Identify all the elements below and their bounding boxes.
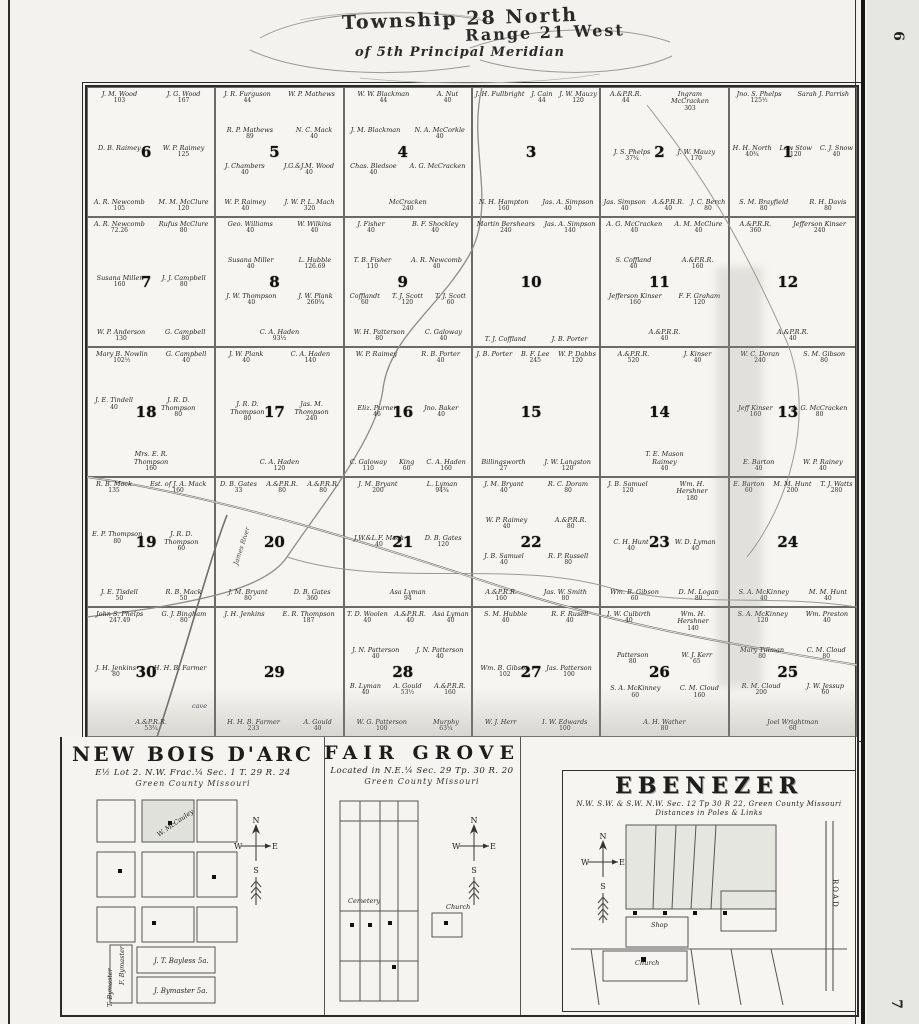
parcel-label: A. R. Newcomb72.26 [94,221,145,235]
section-number: 11 [649,273,670,291]
parcel-label: I. W. Edwards100 [542,719,587,733]
section-1: Jno. S. Phelps125½Sarah J. ParrishH. H. … [729,87,857,217]
parcel-label: Jas. A. Simpson140 [544,221,595,235]
parcel-label: J. N. Patterson40 [416,647,463,661]
parcel-label: D. M. Logan80 [678,589,718,603]
parcel-label: A.&P.R.R.360 [740,221,772,235]
cemetery-label: Cemetery [348,897,380,905]
parcel-label: Jeff Kinser160 [738,405,773,419]
parcel-label: G. Campbell80 [165,329,205,343]
parcel-label: J.G.&J.M. Wood40 [284,163,334,177]
parcel-label: S. A. McKinney40 [739,589,789,603]
inset-location-ebenezer: N.W. S.W. & S.W. N.W. Sec. 12 Tp 30 R 22… [563,800,855,808]
compass-w: W [452,842,461,851]
parcel-label: J. G. Wood167 [167,91,201,105]
section-number: 17 [264,403,285,421]
section-number: 16 [392,403,413,421]
parcel-label: C. M. Cloud80 [807,647,846,661]
section-15: J. B. PorterB. F. Lee245W. P. Dabbs120Bi… [472,347,600,477]
parcel-label: B. F. Shockley40 [412,221,458,235]
parcel-label: S. M. Gibson80 [803,351,845,365]
section-number: 10 [521,273,542,291]
parcel-label: J. C. Berch80 [691,199,726,213]
inset-title-new-bois-darc: NEW BOIS D'ARC [62,742,324,766]
t-bymaster-parcel-label: T. Bymaster [106,968,114,1007]
section-18: Mary B. Nowlin102½G. Campbell40J. E. Tin… [87,347,215,477]
parcel-label: L. Hubble126.69 [299,257,332,271]
parcel-label: S. A. McKinney120 [738,611,788,625]
parcel-label: R. C. Doram80 [548,481,588,495]
parcel-label: Cofflandt60 [350,293,380,307]
section-number: 8 [269,273,279,291]
section-number: 20 [264,533,285,551]
inset-ebenezer: EBENEZER N.W. S.W. & S.W. N.W. Sec. 12 T… [562,770,856,1012]
parcel-label: I. W. Culbirth40 [607,611,651,633]
parcel-label: C. J. Snow40 [820,145,853,159]
compass-s: S [600,882,605,891]
parcel-label: Jas. A. Simpson40 [542,199,593,213]
parcel-label: W. P. Mathews [288,91,335,105]
parcel-label: A.&P.R.R.40 [394,611,426,625]
parcel-label: A.&P.R.R.40 [777,329,809,343]
parcel-label: W. J. Kerr65 [681,652,712,666]
section-number: 26 [649,663,670,681]
j-bymaster-parcel-label: J. Bymaster 5a. [154,987,208,995]
parcel-label: J. W. Plank40 [229,351,263,365]
section-27: S. M. Hubble40R. F. Rusell40Wm. B. Gibso… [472,607,600,737]
parcel-label: W. H. Patterson80 [354,329,405,343]
section-number: 30 [136,663,157,681]
parcel-label: A. Gould53½ [393,683,421,697]
parcel-label: J. H. Jenkins [224,611,264,625]
parcel-label: Jas. Simpson40 [604,199,646,213]
parcel-label: A. G. McCracken [410,163,466,177]
section-number: 12 [777,273,798,291]
parcel-label: N. A. McCorkle40 [415,127,465,141]
parcel-label: G. Campbell40 [166,351,206,365]
compass-s: S [471,866,476,875]
section-29: J. H. JenkinsE. R. Thompson187H. H. B. F… [215,607,343,737]
parcel-label: J. M. Bryant80 [228,589,267,603]
parcel-label: R. P. Mathews89 [227,127,273,141]
parcel-label: W. D. Lyman40 [675,539,716,553]
parcel-label: S. Coffland40 [616,257,652,271]
parcel-label: Rufus McClure80 [159,221,209,235]
parcel-label: M. M. Hunt40 [809,589,847,603]
inset-title-fair-grove: FAIR GROVE [324,742,520,764]
parcel-label: J. E. Tisdell50 [101,589,138,603]
section-number: 3 [526,143,536,161]
parcel-label: W. W. Blackman44 [357,91,409,105]
section-10: Martin Bershears240Jas. A. Simpson140T. … [472,217,600,347]
township-grid: J. M. Wood103J. G. Wood167D. B. RaimeyW.… [87,87,857,737]
parcel-label: R. B. Porter40 [421,351,460,365]
section-2: A.&P.R.R.44Ingram McCracken303J. S. Phel… [600,87,728,217]
parcel-label: J. B. Porter [552,336,588,343]
parcel-label: Jas. Patterson100 [546,665,592,679]
parcel-label: J. B. Samuel120 [608,481,648,503]
parcel-label: Asa Lyman40 [433,611,469,625]
parcel-label: F. F. Graham120 [679,293,721,307]
section-28: T. D. Woolen40A.&P.R.R.40Asa Lyman40J. N… [344,607,472,737]
parcel-label: C. A. Haden120 [260,459,299,473]
inset-divider-2 [520,737,521,1015]
parcel-label: R. F. Rusell40 [551,611,588,625]
atlas-page: Township 28 North Range 21 West of 5th P… [0,0,919,1024]
parcel-label: C. Galoway110 [350,459,387,473]
parcel-label: T. J. Watts280 [820,481,852,495]
compass-e: E [272,842,278,851]
section-number: 19 [136,533,157,551]
parcel-label: A.&P.R.R.160 [434,683,466,697]
parcel-label: G. J. Bingham80 [161,611,206,625]
parcel-label: J. M. Wood103 [102,91,137,105]
parcel-label: S. M. Hubble40 [484,611,527,625]
parcel-label: Martin Bershears240 [477,221,535,235]
parcel-label: J. W. P. L. Mach320 [285,199,335,213]
section-23: J. B. Samuel120Wm. H. Hershner180C. H. H… [600,477,728,607]
parcel-label: W. P. Anderson130 [97,329,145,343]
parcel-label: C. Galoway40 [425,329,462,343]
township-map: J. M. Wood103J. G. Wood167D. B. RaimeyW.… [85,85,859,739]
section-19: R. B. Mack135Est. of J. A. Mack160E. P. … [87,477,215,607]
parcel-label: T. D. Woolen40 [347,611,388,625]
parcel-label: Patterson80 [617,652,649,666]
compass-n: N [253,816,260,825]
parcel-label: Jno. S. Phelps125½ [737,91,782,105]
inset-county-new-bois-darc: Green County Missouri [62,779,324,788]
parcel-label: J. W. Mauzy170 [677,149,715,163]
section-6: J. M. Wood103J. G. Wood167D. B. RaimeyW.… [87,87,215,217]
section-number: 24 [777,533,798,551]
parcel-label: A.&P.R.R.80 [266,481,298,495]
compass-e: E [490,842,496,851]
parcel-label: J. M. Bryant40 [484,481,523,495]
parcel-label: A. R. Newcomb105 [94,199,145,213]
compass-rose: N W E S [452,815,496,911]
section-number: 4 [398,143,408,161]
section-number: 7 [141,273,151,291]
inset-county-fair-grove: Green County Missouri [324,777,520,786]
parcel-label: A. G. McCracken40 [606,221,662,235]
section-11: A. G. McCracken40A. M. McClure40S. Coffl… [600,217,728,347]
parcel-label: J. W. Mauzy120 [559,91,597,105]
parcel-label: J. Chambers40 [225,163,265,177]
section-number: 2 [654,143,664,161]
parcel-label: C. H. Hunt40 [613,539,648,553]
parcel-label: Wm. B. Gibson60 [610,589,659,603]
parcel-label: N. H. Hampton160 [479,199,529,213]
compass-n: N [600,832,607,841]
parcel-label: M. M. Hunt200 [773,481,811,495]
church-label-eb: Church [635,959,659,967]
parcel-label: R. B. Mack135 [96,481,132,495]
parcel-label: E. R. Thompson187 [283,611,335,625]
parcel-label: H. H. B. Farmer233 [227,719,280,733]
parcel-label: J. H. Fullbright [475,91,524,105]
parcel-label: E. Barton40 [743,459,774,473]
section-17: J. W. Plank40C. A. Haden140J. R. D. Thom… [215,347,343,477]
bayless-parcel-label: J. T. Bayless 5a. [154,957,209,965]
parcel-label: Susana Miller40 [228,257,274,271]
shop-label: Shop [651,921,668,929]
parcel-label: J. J. Campbell80 [162,275,206,289]
parcel-label: R. H. Davis80 [809,199,846,213]
parcel-label: Wm. Preston40 [806,611,848,625]
section-number: 18 [136,403,157,421]
map-title-block: Township 28 North Range 21 West of 5th P… [240,8,680,86]
parcel-label: J. B. Samuel40 [484,553,524,567]
parcel-label: J. Cain44 [531,91,552,105]
section-3: J. H. FullbrightJ. Cain44J. W. Mauzy120N… [472,87,600,217]
inset-fair-grove: FAIR GROVE Located in N.E.¼ Sec. 29 Tp. … [324,737,520,1015]
parcel-label: W. J. Herr [485,719,517,733]
inset-new-bois-darc: NEW BOIS D'ARC E½ Lot 2. N.W. Frac.¼ Sec… [62,737,324,1015]
road-label: ROAD [831,879,839,909]
section-number: 27 [521,663,542,681]
parcel-label: A. M. McClure40 [674,221,722,235]
parcel-label: A.&P.R.R.80 [307,481,339,495]
section-number: 14 [649,403,670,421]
page-edge-band: 6 7 [867,0,919,1024]
section-22: J. M. Bryant40R. C. Doram80W. P. Raimey4… [472,477,600,607]
parcel-label: J. W. Thompson40 [226,293,276,307]
section-number: 29 [264,663,285,681]
parcel-label: B. F. Lee245 [521,351,550,365]
parcel-label: D. B. Raimey [98,145,141,159]
parcel-label: B. Lyman40 [350,683,381,697]
section-number: 28 [392,663,413,681]
parcel-label: A.&P.R.R.40 [652,199,684,213]
parcel-label: A.&P.R.R.53¾ [135,719,167,733]
parcel-label: J. S. Phelps37¾ [614,149,651,163]
parcel-label: H. H. North40¾ [733,145,772,159]
inset-note-ebenezer: Distances in Poles & Links [563,809,855,817]
parcel-label: Eliz. Purner46 [357,405,396,419]
section-number: 1 [783,143,793,161]
f-bymaster-parcel-label: F. Bymaster [118,946,126,985]
parcel-label: W. G. Patterson100 [357,719,407,733]
parcel-label: J. Fisher40 [357,221,384,235]
parcel-label: S. M. Brayfield80 [739,199,788,213]
page-number-bottom: 7 [888,999,904,1009]
parcel-label: McCracken240 [389,199,427,213]
parcel-label: N. C. Mack40 [296,127,332,141]
page-edge-line-thin [855,0,856,1024]
parcel-label: R. P. Russell80 [548,553,588,567]
parcel-label: R. M. Cloud200 [742,683,781,697]
parcel-label: R. B. Mack50 [165,589,201,603]
section-number: 23 [649,533,670,551]
section-26: I. W. Culbirth40Wm. H. Hershner140Patter… [600,607,728,737]
section-number: 22 [521,533,542,551]
parcel-label: D. B. Gates360 [294,589,331,603]
page-gutter-line [8,0,10,1024]
parcel-label: Jas. W. Smith80 [544,589,587,603]
section-7: A. R. Newcomb72.26Rufus McClure80Susana … [87,217,215,347]
parcel-label: A.&P.R.R.520 [618,351,650,365]
parcel-label: A. H. Wather80 [643,719,685,733]
parcel-label: W. P. Raimey125 [163,145,205,159]
parcel-label: Jno. Baker40 [424,405,458,419]
parcel-label: W. P. Raimey [356,351,398,365]
section-5: J. R. Furguson44W. P. MathewsR. P. Mathe… [215,87,343,217]
parcel-label: A. R. Newcomb40 [411,257,462,271]
section-30: John S. Phelps247.49G. J. Bingham80J. H.… [87,607,215,737]
parcel-label: C. A. Haden140 [291,351,330,365]
parcel-label: M. M. McClure120 [158,199,208,213]
parcel-label: J. M. Bryant200 [358,481,397,495]
parcel-label: J. Kinser40 [684,351,712,365]
parcel-label: Geo. Williams40 [228,221,273,235]
parcel-label: E. Barton60 [733,481,764,495]
parcel-label: King60 [399,459,414,473]
section-20: D. B. Gates33A.&P.R.R.80A.&P.R.R.80J. M.… [215,477,343,607]
compass-w: W [581,858,590,867]
section-14: A.&P.R.R.520J. Kinser40T. E. Mason Raime… [600,347,728,477]
parcel-label: Murphy63¼ [433,719,459,733]
section-number: 25 [777,663,798,681]
parcel-label: J. R. D. Thompson80 [149,397,207,419]
section-number: 9 [398,273,408,291]
inset-title-ebenezer: EBENEZER [563,773,855,799]
section-number: 15 [521,403,542,421]
parcel-label: J. W. Jessup60 [807,683,844,697]
parcel-label: L. Lyman94¾ [427,481,458,495]
parcel-label: W. C. Doran240 [741,351,780,365]
parcel-label: J. R. Furguson44 [224,91,271,105]
section-4: W. W. Blackman44A. Nut40J. M. BlackmanN.… [344,87,472,217]
section-number: 6 [141,143,151,161]
parcel-label: Jefferson Kinser240 [793,221,846,235]
parcel-label: T. J. Scott60 [435,293,466,307]
section-24: E. Barton60M. M. Hunt200T. J. Watts280S.… [729,477,857,607]
section-25: S. A. McKinney120Wm. Preston40Mary Tillm… [729,607,857,737]
section-number: 21 [392,533,413,551]
parcel-label: John S. Phelps247.49 [96,611,143,625]
section-13: W. C. Doran240S. M. Gibson80Jeff Kinser1… [729,347,857,477]
parcel-label: Ingram McCracken303 [661,91,719,113]
compass-s: S [253,866,258,875]
inset-location-new-bois-darc: E½ Lot 2. N.W. Frac.¼ Sec. 1 T. 29 R. 24 [62,768,324,778]
parcel-label: A. Nut40 [437,91,458,105]
parcel-label: Asa Lyman94 [390,589,426,603]
parcel-label: A.&P.R.R.40 [649,329,681,343]
parcel-label: C. A. Haden93⅓ [260,329,299,343]
parcel-label: J. R. D. Thompson60 [152,531,210,553]
compass-n: N [471,816,478,825]
parcel-label: W. P. Rainey40 [803,459,843,473]
section-9: J. Fisher40B. F. Shockley40T. B. Fisher1… [344,217,472,347]
parcel-label: Sarah J. Parrish [797,91,849,105]
parcel-label: Billingsworth27 [481,459,525,473]
section-12: A.&P.R.R.360Jefferson Kinser240A.&P.R.R.… [729,217,857,347]
parcel-label: Jas. M. Thompson240 [283,401,341,423]
parcel-label: S. A. McKinney60 [610,685,660,699]
parcel-label: Jefferson Kinser160 [609,293,662,307]
parcel-label: A.&P.R.R.160 [485,589,517,603]
parcel-label: A. G. McCracken80 [792,405,848,419]
section-21: J. M. Bryant200L. Lyman94¾J.W.&L.F. Mach… [344,477,472,607]
parcel-label: W. P. Raimey40 [486,517,528,531]
parcel-label: Susana Miller160 [97,275,143,289]
parcel-label: T. B. Fisher110 [354,257,392,271]
compass-w: W [234,842,243,851]
parcel-label: W. P. Raimey40 [225,199,267,213]
parcel-label: T. J. Scott120 [392,293,423,307]
parcel-label: D. B. Gates33 [220,481,257,495]
section-8: Geo. Williams40W. Wilkins40Susana Miller… [215,217,343,347]
parcel-label: Wm. H. Hershner140 [664,611,722,633]
section-number: 13 [777,403,798,421]
town-insets-band: NEW BOIS D'ARC E½ Lot 2. N.W. Frac.¼ Sec… [60,737,859,1017]
section-number: 5 [269,143,279,161]
parcel-label: Mrs. E. R. Thompson160 [122,451,180,473]
parcel-label: W. Wilkins40 [297,221,331,235]
parcel-label: H. H. B. Farmer [154,665,207,679]
parcel-label: C. M. Cloud160 [680,685,719,699]
compass-e: E [619,858,625,867]
page-number-top: 6 [890,31,906,41]
parcel-label: Mary B. Nowlin102½ [96,351,148,365]
cave-label: cave [192,702,207,710]
parcel-label: A.&P.R.R.44 [610,91,642,113]
parcel-label: W. P. Dabbs120 [558,351,596,365]
parcel-label: Joel Wrightman60 [767,719,818,733]
parcel-label: Est. of J. A. Mack160 [150,481,206,495]
parcel-label: A.&P.R.R.80 [555,517,587,531]
parcel-label: Chas. Bledsoe40 [350,163,396,177]
inset-location-fair-grove: Located in N.E.¼ Sec. 29 Tp. 30 R. 20 [324,766,520,776]
parcel-label: A.&P.R.R.160 [682,257,714,271]
parcel-label: J. W. Langston120 [544,459,591,473]
parcel-label: J. E. Tindell40 [95,397,133,419]
section-16: W. P. RaimeyR. B. Porter40Eliz. Purner46… [344,347,472,477]
parcel-label: J. M. Blackman [351,127,401,141]
compass-rose: N W E S [234,815,278,911]
parcel-label: A. Gould40 [303,719,331,733]
parcel-label: Wm. H. Hershner180 [663,481,721,503]
parcel-label: Mary Tillman80 [740,647,784,661]
parcel-label: J. W. Plank260¾ [298,293,332,307]
parcel-label: J. N. Patterson40 [352,647,399,661]
parcel-label: T. J. Coffland [485,336,526,343]
parcel-label: T. E. Mason Raimey40 [635,451,693,473]
compass-rose: N W E S [581,831,625,927]
parcel-label: J. H. Jenkins80 [96,665,136,679]
parcel-label: D. B. Gates120 [425,535,462,549]
parcel-label: J. B. Porter [476,351,512,365]
page-edge-line-thick [861,0,865,1024]
parcel-label: C. A. Haden160 [426,459,465,473]
